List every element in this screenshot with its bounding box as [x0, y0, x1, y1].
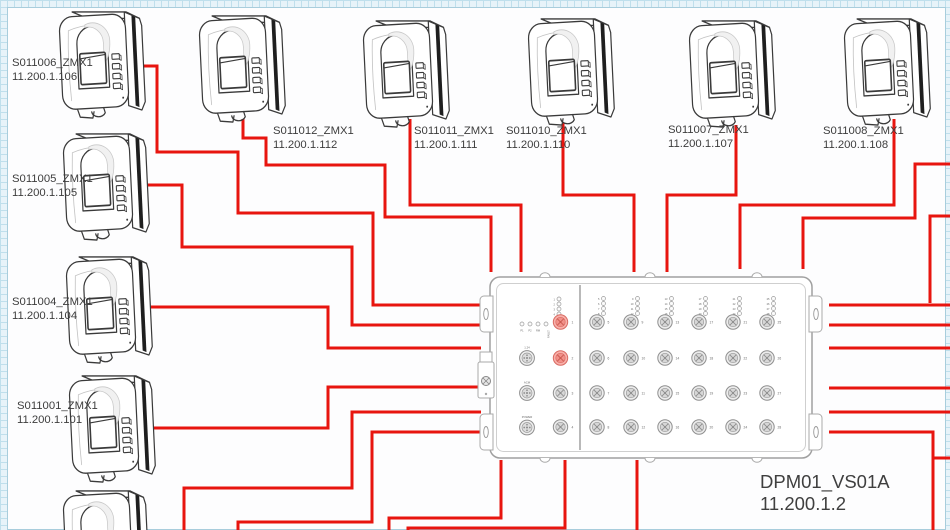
device-s011010_zmx1[interactable]: S011010_ZMX111.200.1.110	[506, 15, 615, 151]
clamp-dot	[485, 393, 487, 395]
led	[602, 312, 606, 316]
device-name-label: S011011_ZMX1	[414, 125, 494, 137]
device-name-label: S011010_ZMX1	[506, 125, 587, 137]
led	[738, 312, 742, 316]
led	[738, 302, 742, 306]
top-bump	[752, 273, 762, 277]
port-16	[658, 420, 672, 434]
led	[636, 297, 640, 301]
device-name-label: S011007_ZMX1	[668, 124, 749, 136]
status-led-label: FAULT	[547, 330, 551, 338]
device-name-label: S011008_ZMX1	[823, 125, 904, 137]
led	[772, 302, 776, 306]
wire-offscreen-bottom-1	[184, 412, 481, 530]
device-s011007_zmx1[interactable]: S011007_ZMX111.200.1.107	[668, 17, 776, 150]
led	[704, 312, 708, 316]
device-ip-label: 11.200.1.112	[273, 139, 337, 151]
connector-power	[520, 420, 535, 435]
port-2	[553, 351, 567, 365]
device-name-label: S011006_ZMX1	[12, 57, 93, 69]
mount-slot	[814, 309, 819, 320]
led	[704, 307, 708, 311]
switch-dpm01_vs01a[interactable]: P1P2RMFAULT123412341.24ACMPOWER556677889…	[478, 273, 890, 514]
device-name-label: S011001_ZMX1	[17, 400, 98, 412]
port-25	[760, 315, 774, 329]
device-name-label: S011012_ZMX1	[273, 125, 354, 137]
led	[520, 322, 524, 326]
wire-switch-bottom-1	[389, 460, 501, 530]
port-8	[590, 420, 604, 434]
led	[602, 297, 606, 301]
connector-label: 1.24	[524, 346, 530, 350]
port-26	[760, 351, 774, 365]
device-name-label: S011004_ZMX1	[12, 296, 93, 308]
port-number: 21	[744, 320, 748, 324]
port-12	[624, 420, 638, 434]
connector-label: ACM	[524, 381, 531, 385]
port-number: 18	[710, 356, 714, 360]
port-number: 28	[778, 425, 782, 429]
port-24	[726, 420, 740, 434]
port-19	[692, 386, 706, 400]
port-number: 20	[710, 425, 714, 429]
port-number: 14	[676, 356, 680, 360]
port-number: 27	[778, 391, 782, 395]
port-number: 6	[608, 356, 610, 360]
led	[738, 307, 742, 311]
led	[772, 307, 776, 311]
mount-slot	[814, 427, 819, 438]
port-number: 3	[572, 391, 574, 395]
top-bump	[645, 273, 655, 277]
connector-label: POWER	[522, 415, 533, 419]
led	[536, 322, 540, 326]
port-number: 25	[778, 320, 782, 324]
status-led-label: P2	[528, 329, 532, 333]
device-ip-label: 11.200.1.106	[12, 71, 77, 83]
port-number: 8	[608, 425, 610, 429]
port-number: 5	[608, 320, 610, 324]
port-14	[658, 351, 672, 365]
device-ip-label: 11.200.1.108	[823, 139, 888, 151]
device-ip-label: 11.200.1.104	[12, 310, 77, 322]
port-number: 23	[744, 391, 748, 395]
port-21	[726, 315, 740, 329]
port-number: 13	[676, 320, 680, 324]
port-10	[624, 351, 638, 365]
bottom-bump	[752, 458, 762, 462]
connector-acm	[520, 386, 535, 401]
device-ip-label: 11.200.1.105	[12, 187, 77, 199]
wire-offscreen-right-top	[803, 164, 950, 269]
port-18	[692, 351, 706, 365]
switch-name-label: DPM01_VS01A	[760, 471, 890, 493]
device-partial[interactable]	[63, 487, 150, 530]
port-number: 26	[778, 356, 782, 360]
device-s011006_zmx1[interactable]: S011006_ZMX111.200.1.106	[12, 8, 146, 120]
bottom-bump	[540, 458, 550, 462]
mount-slot	[484, 309, 489, 320]
port-number: 19	[710, 391, 714, 395]
device-name-label: S011005_ZMX1	[12, 173, 93, 185]
led	[670, 297, 674, 301]
wire-right-up-stub	[930, 216, 950, 303]
port-27	[760, 386, 774, 400]
led	[602, 307, 606, 311]
led	[557, 302, 561, 306]
port-23	[726, 386, 740, 400]
port-number: 24	[744, 425, 748, 429]
led	[704, 297, 708, 301]
port-6	[590, 351, 604, 365]
device-ip-label: 11.200.1.101	[17, 414, 82, 426]
port-number: 2	[572, 356, 574, 360]
wire-s011004	[151, 307, 481, 348]
wiring-diagram: S011006_ZMX111.200.1.106S011005_ZMX111.2…	[0, 0, 950, 530]
port-5	[590, 315, 604, 329]
port-number: 16	[676, 425, 680, 429]
led	[772, 297, 776, 301]
led	[636, 307, 640, 311]
wire-s011001	[154, 387, 481, 428]
led	[557, 307, 561, 311]
device-s011011_zmx1[interactable]: S011011_ZMX111.200.1.111	[363, 17, 494, 151]
led	[557, 297, 561, 301]
led	[670, 307, 674, 311]
port-4	[553, 420, 567, 434]
port-28	[760, 420, 774, 434]
switch-ip-label: 11.200.1.2	[760, 493, 846, 514]
status-led-label: P1	[520, 329, 524, 333]
port-11	[624, 386, 638, 400]
led	[670, 312, 674, 316]
led	[772, 312, 776, 316]
port-number: 10	[642, 356, 646, 360]
led	[704, 302, 708, 306]
wire-s011010	[563, 123, 634, 272]
port-3	[553, 386, 567, 400]
status-led-label: RM	[536, 329, 540, 333]
port-number: 12	[642, 425, 646, 429]
wire-offscreen-bottom-2	[238, 432, 481, 530]
device-s011005_zmx1[interactable]: S011005_ZMX111.200.1.105	[12, 130, 150, 242]
device-ip-label: 11.200.1.110	[506, 139, 570, 151]
port-number: 7	[608, 391, 610, 395]
port-7	[590, 386, 604, 400]
port-number: 11	[642, 391, 646, 395]
port-number: 4	[572, 425, 574, 429]
led	[528, 322, 532, 326]
led	[738, 297, 742, 301]
port-22	[726, 351, 740, 365]
bottom-bump	[645, 458, 655, 462]
port-number: 9	[642, 320, 644, 324]
diagram-canvas: S011006_ZMX111.200.1.106S011005_ZMX111.2…	[0, 0, 950, 530]
led	[636, 312, 640, 316]
led	[636, 302, 640, 306]
port-number: 15	[676, 391, 680, 395]
led	[670, 302, 674, 306]
mount-slot	[484, 427, 489, 438]
port-17	[692, 315, 706, 329]
device-ip-label: 11.200.1.107	[668, 138, 733, 150]
device-ip-label: 11.200.1.111	[414, 139, 477, 151]
port-15	[658, 386, 672, 400]
port-number: 1	[572, 320, 574, 324]
device-s011008_zmx1[interactable]: S011008_ZMX111.200.1.108	[823, 15, 931, 151]
switch-layer: P1P2RMFAULT123412341.24ACMPOWER556677889…	[478, 273, 890, 514]
port-9	[624, 315, 638, 329]
port-number: 17	[710, 320, 714, 324]
led	[602, 302, 606, 306]
port-1	[553, 315, 567, 329]
top-bump	[540, 273, 550, 277]
device-s011001_zmx1[interactable]: S011001_ZMX111.200.1.101	[17, 372, 156, 484]
connector-1.24	[520, 351, 535, 366]
device-s011004_zmx1[interactable]: S011004_ZMX111.200.1.104	[12, 253, 153, 365]
device-s011012_zmx1[interactable]: S011012_ZMX111.200.1.112	[199, 12, 354, 151]
port-number: 22	[744, 356, 748, 360]
led	[544, 322, 548, 326]
port-20	[692, 420, 706, 434]
port-13	[658, 315, 672, 329]
